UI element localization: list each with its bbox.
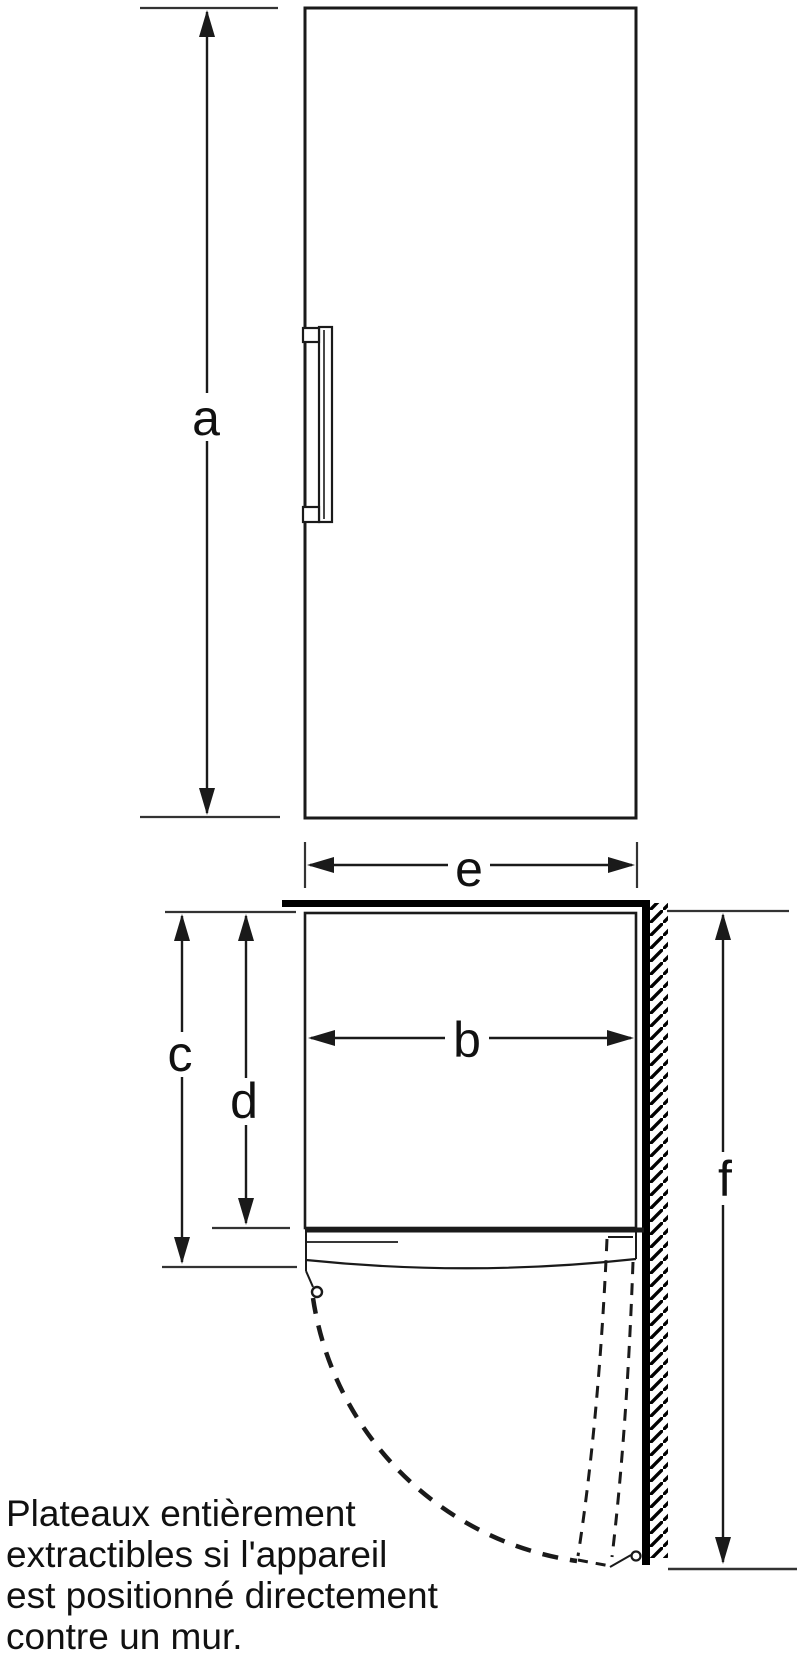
handle-bracket-bottom [303, 507, 319, 522]
handle-bracket-top [303, 328, 319, 342]
dimension-e: e [305, 841, 637, 897]
dim-label-e: e [455, 841, 483, 897]
door-front-face [306, 1259, 636, 1268]
dim-label-d: d [230, 1073, 258, 1129]
dimension-d: d [212, 914, 290, 1228]
dim-label-f: f [718, 1151, 732, 1207]
top-view [282, 900, 668, 1567]
dimension-f: f [667, 911, 797, 1569]
arrowhead-c-down-icon [174, 1237, 190, 1264]
arrowhead-d-up-icon [238, 914, 254, 941]
arrowhead-f-down-icon [715, 1537, 731, 1564]
appliance-front-outline [305, 8, 636, 818]
door-open-outer-edge [578, 1239, 607, 1556]
handle-knob-open [632, 1552, 641, 1561]
front-view [303, 8, 636, 818]
door-open-inner-edge [612, 1262, 633, 1557]
dim-label-c: c [168, 1026, 193, 1082]
wall-top [282, 900, 649, 907]
dim-label-b: b [453, 1012, 481, 1068]
arrowhead-f-up-icon [715, 913, 731, 940]
arrowhead-d-down-icon [238, 1198, 254, 1225]
diagram-canvas: a e [0, 0, 800, 1660]
arrowhead-c-up-icon [174, 914, 190, 941]
wall-hatching [650, 903, 668, 1558]
arrowhead-a-up-icon [199, 10, 215, 37]
handle-bar [319, 327, 332, 522]
dimension-diagram: a e [0, 0, 800, 1660]
door-open-end-face [578, 1560, 610, 1566]
door-closed [305, 1230, 644, 1297]
caption-text: Plateaux entièrement extractibles si l'a… [6, 1493, 526, 1657]
arrowhead-a-down-icon [199, 788, 215, 815]
dimension-a: a [140, 8, 280, 817]
dim-label-a: a [192, 390, 220, 446]
handle-knob-closed [312, 1287, 322, 1297]
appliance-top-outline [305, 913, 636, 1228]
arrowhead-e-right-icon [608, 857, 635, 873]
handle-link-line [306, 1271, 313, 1287]
arrowhead-e-left-icon [307, 857, 334, 873]
